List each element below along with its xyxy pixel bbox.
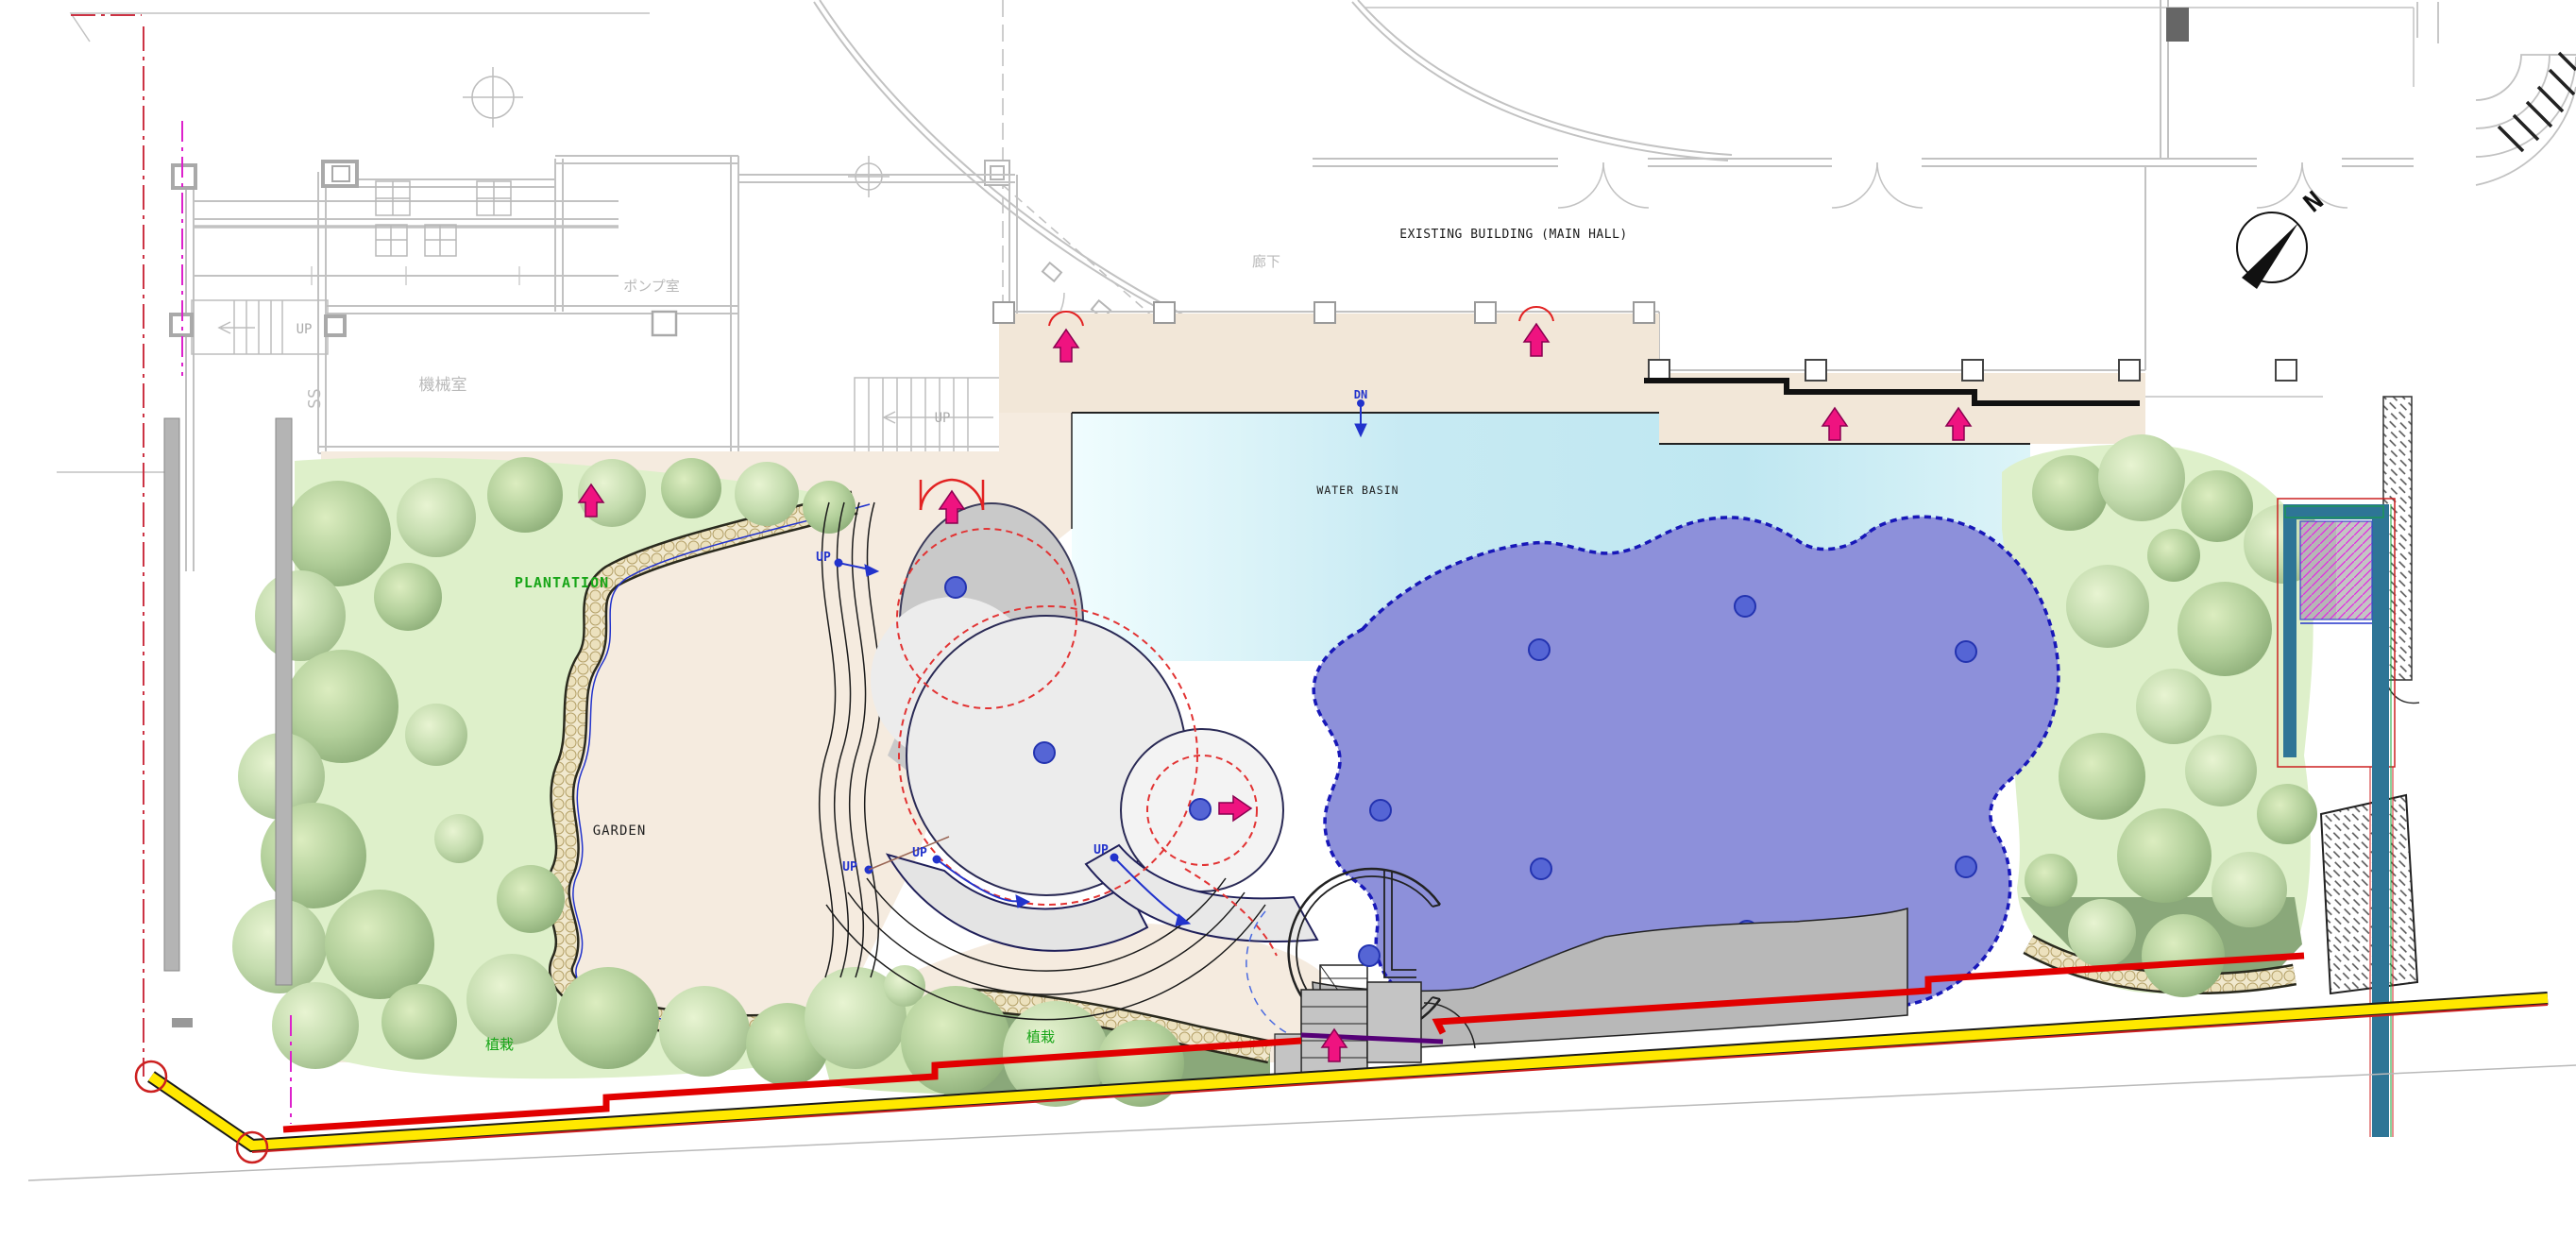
tree [434,814,483,863]
hatched-pad [2321,795,2417,993]
tree [2257,784,2317,844]
tree [497,865,565,933]
label-ss: SS [305,388,325,409]
site-plan-drawing: EXISTING BUILDING (MAIN HALL) 廊下 ポンプ室 機械… [0,0,2576,1239]
column-dot [1190,799,1211,820]
tree [405,704,467,766]
tree [2068,899,2136,967]
label-up-blue1: UP [816,551,831,565]
label-dn: DN [1354,388,1367,401]
column-dot [1359,945,1380,966]
tree [2212,852,2287,927]
label-corridor: 廊下 [1252,253,1280,270]
right-terrace [1659,373,2145,444]
tree [466,954,557,1044]
tree [2136,669,2212,744]
site-plan-svg: EXISTING BUILDING (MAIN HALL) 廊下 ポンプ室 機械… [0,0,2576,1239]
teal-wall-right [2372,504,2389,1137]
label-up-stair1: UP [297,322,313,337]
tree [255,570,346,661]
tree [2117,808,2212,903]
teal-wall-left [2283,519,2296,757]
tree [2142,914,2225,997]
planter-wall [164,418,179,971]
label-machine-room: 機械室 [419,376,467,395]
tree [2181,470,2253,542]
column-dot [945,577,966,598]
tree [661,458,721,518]
tree [803,481,856,534]
tree [2066,565,2149,648]
tree [272,982,359,1069]
roof-element [2166,8,2189,42]
label-pump-room: ポンプ室 [623,278,680,295]
tree [2025,854,2077,907]
north-compass [2237,212,2307,289]
tree [2059,733,2145,820]
tree [659,986,750,1077]
label-planting-right: 植栽 [1026,1028,1055,1045]
tree [2032,455,2108,531]
label-planting-left: 植栽 [485,1036,514,1053]
tree [2147,529,2200,582]
label-up-stair2: UP [935,411,951,426]
tree [397,478,476,557]
tree [487,457,563,533]
right-structures [2278,397,2419,1137]
upper-terrace [999,314,1659,413]
tree [557,967,659,1069]
label-existing-building: EXISTING BUILDING (MAIN HALL) [1399,228,1627,242]
column-dot [1034,742,1055,763]
tree [2178,582,2272,676]
tree [381,984,457,1060]
label-up-blue3: UP [912,846,927,860]
label-up-blue2: UP [842,860,857,874]
label-garden: GARDEN [593,823,647,839]
tree [2098,434,2185,521]
label-up-blue4: UP [1093,843,1109,857]
tree [374,563,442,631]
tree [735,462,799,526]
tree [2185,735,2257,806]
tree [325,890,434,999]
ramp-top-right [2417,2,2576,185]
label-plantation: PLANTATION [515,574,609,591]
crosshair-symbol [463,67,890,197]
double-door-swing [1558,162,2347,208]
label-water-basin: WATER BASIN [1316,484,1398,497]
planter-wall [276,418,292,985]
